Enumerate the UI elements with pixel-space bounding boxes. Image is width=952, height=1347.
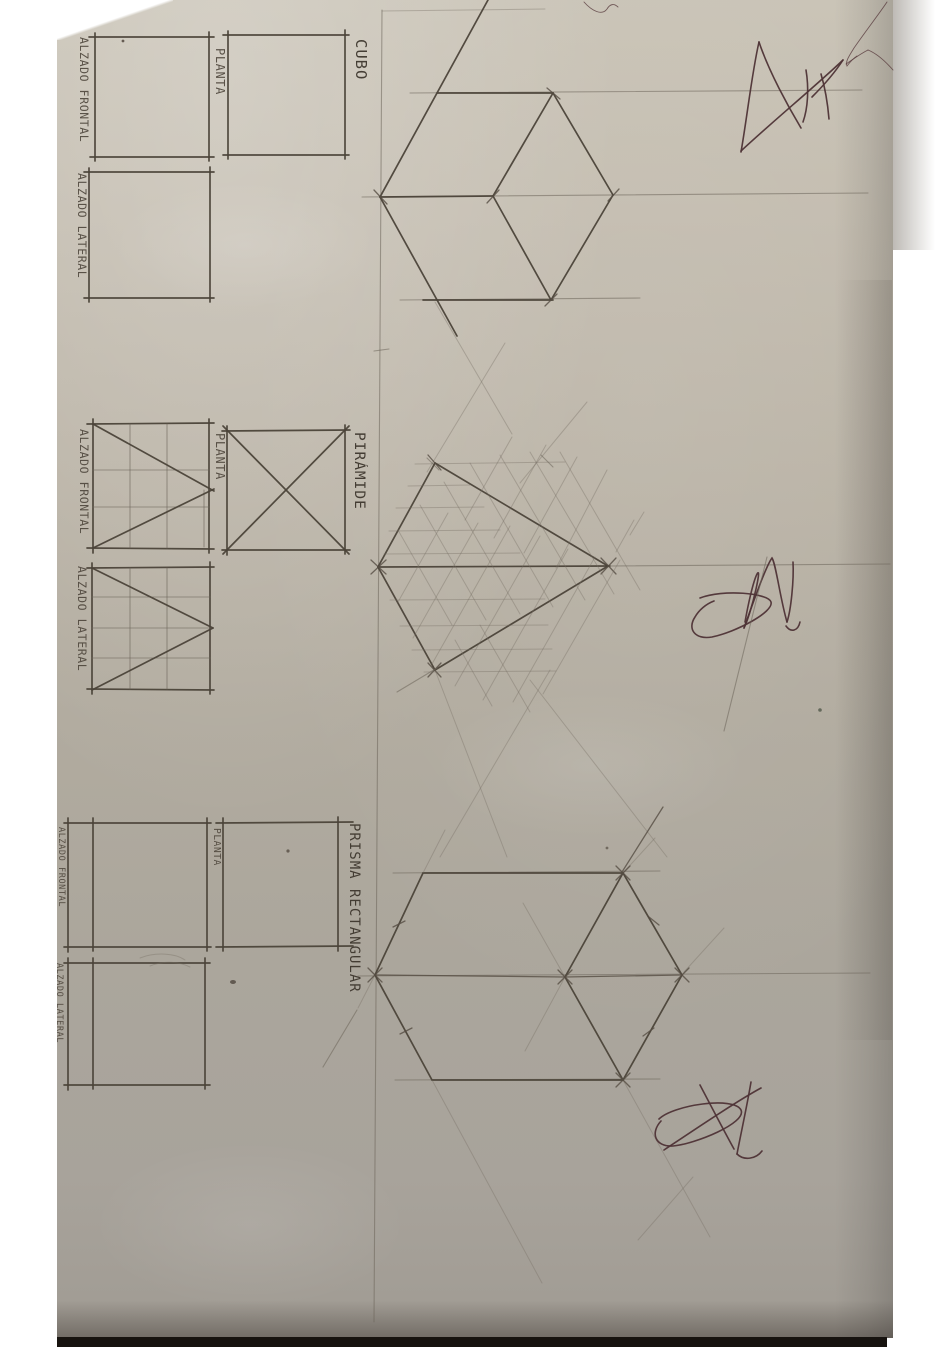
label-piramide-alzado-lateral: ALZADO LATERAL xyxy=(75,566,89,671)
title-prisma: PRISMA RECTANGULAR xyxy=(346,823,362,993)
label-cubo-planta: PLANTA xyxy=(213,48,227,95)
label-prisma-alzado-lateral: ALZADO LATERAL xyxy=(54,963,64,1043)
label-prisma-planta: PLANTA xyxy=(211,828,222,866)
label-cubo-alzado-frontal: ALZADO FRONTAL xyxy=(77,37,91,142)
title-piramide: PIRÁMIDE xyxy=(351,432,367,510)
table-edge-shadow xyxy=(57,1337,887,1347)
paper-corner-highlight xyxy=(57,0,173,40)
label-piramide-alzado-frontal: ALZADO FRONTAL xyxy=(77,429,91,534)
paper-sheet xyxy=(57,0,893,1338)
label-cubo-alzado-lateral: ALZADO LATERAL xyxy=(75,173,89,278)
label-prisma-alzado-frontal: ALZADO FRONTAL xyxy=(56,827,66,907)
photo-canvas: ALZADO FRONTAL PLANTA CUBO ALZADO LATERA… xyxy=(0,0,952,1347)
label-piramide-planta: PLANTA xyxy=(213,433,227,480)
paper-edge-shadow xyxy=(893,0,935,250)
title-cubo: CUBO xyxy=(352,39,370,80)
